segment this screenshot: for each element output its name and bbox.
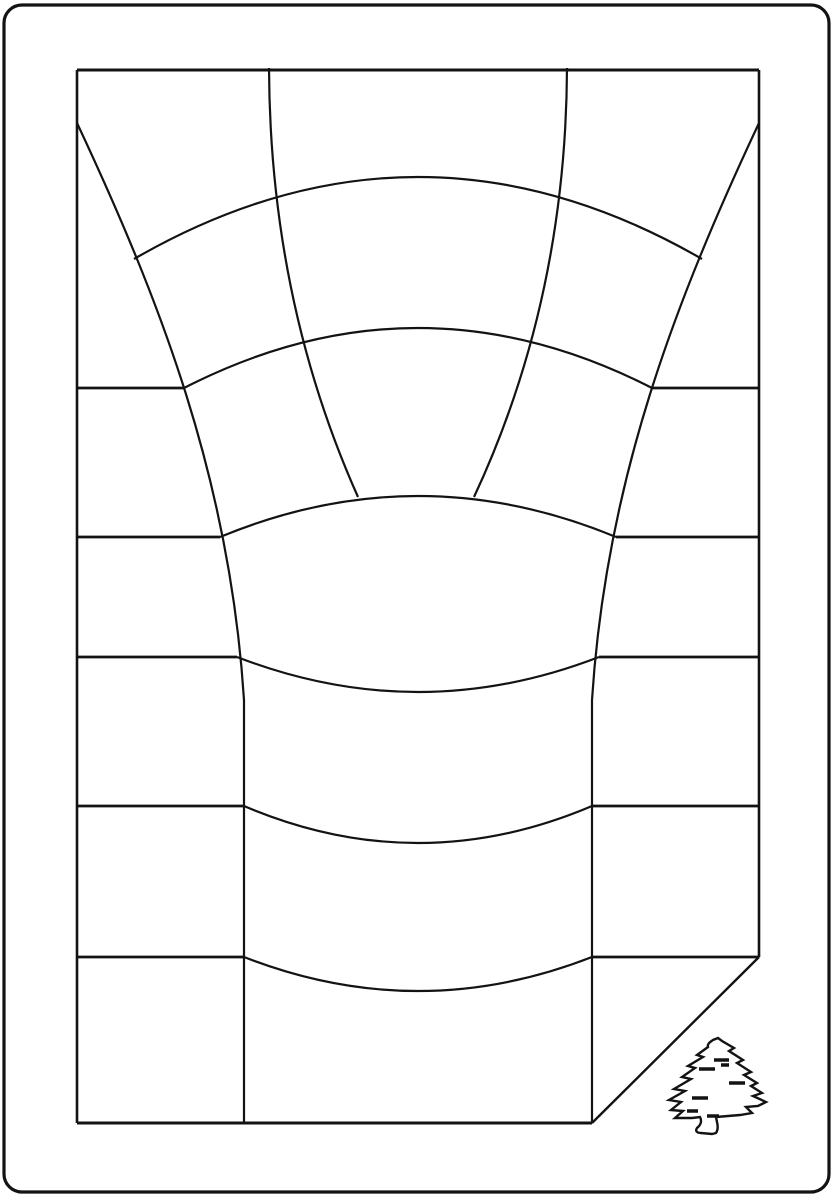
page-background xyxy=(0,0,834,1200)
ring-arc-5 xyxy=(244,806,592,843)
line-art-drawing xyxy=(0,0,834,1200)
ring-arc-6 xyxy=(244,957,592,991)
folded-corner-diagonal xyxy=(592,957,759,1123)
ring-arc-2 xyxy=(184,328,652,388)
warp-line-right-outer xyxy=(592,123,759,1123)
pine-tree-icon xyxy=(669,1038,766,1134)
ring-arc-1 xyxy=(134,177,702,259)
warp-line-left-outer xyxy=(77,123,244,1123)
warp-line-right-inner xyxy=(474,68,567,497)
outer-border xyxy=(4,5,829,1192)
ring-arc-3 xyxy=(220,496,616,537)
ring-arc-4 xyxy=(237,657,599,692)
warp-line-left-inner xyxy=(269,68,358,497)
